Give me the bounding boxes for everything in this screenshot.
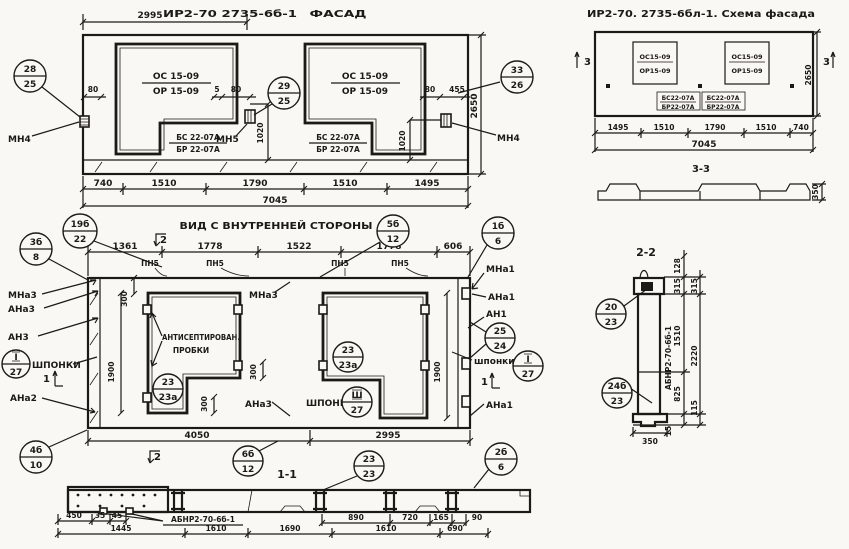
sdim-1495: 1495 [608, 123, 629, 132]
sec22-panel-code: АБНР2-70-6б-1 [664, 326, 673, 390]
svg-text:6: 6 [498, 463, 504, 473]
edge-plate-3 [462, 396, 470, 407]
label-ana1: АНа1 [488, 293, 515, 303]
svg-text:20: 20 [605, 303, 618, 313]
svg-text:5б: 5б [387, 219, 400, 230]
scheme-win-left-1: ОС15-09 [639, 53, 671, 61]
jamb-plug-2 [143, 393, 151, 402]
label-an1: АН1 [486, 310, 507, 320]
svg-text:22: 22 [74, 235, 87, 245]
dim-350-scheme: 350 [811, 184, 820, 200]
scheme-win-right-1: ОС15-09 [731, 53, 763, 61]
facade-blk-left-mark-1: БС 22-07А [176, 133, 220, 142]
dim-1610b: 1610 [376, 524, 397, 533]
svg-text:23: 23 [363, 455, 376, 465]
svg-text:12: 12 [387, 235, 400, 245]
dim-690: 690 [447, 524, 463, 533]
svg-text:23: 23 [611, 397, 624, 407]
label-mn5: МН5 [216, 135, 239, 145]
label-ana1-bottom: АНа1 [486, 401, 513, 411]
sec11-channel-1 [171, 490, 185, 512]
scheme-window-left [633, 42, 677, 84]
dim-1510b: 1510 [332, 179, 357, 189]
dim-2220: 2220 [690, 346, 699, 367]
label-mn4-left: МН4 [8, 135, 31, 145]
svg-text:24: 24 [494, 342, 507, 352]
svg-text:6б: 6б [242, 449, 255, 460]
sec11-anchor-2 [126, 508, 133, 514]
dim-890: 890 [348, 513, 364, 522]
section-2-2-title: 2-2 [636, 246, 656, 259]
facade-win-left-mark-1: ОС 15-09 [153, 72, 199, 82]
dim-7045-scheme: 7045 [691, 140, 716, 150]
dim-350-sec22: 350 [642, 437, 658, 446]
label-ana3-mid: АНа3 [245, 400, 272, 410]
label-pn5-3: ПН5 [331, 259, 349, 268]
edge-plate-2 [462, 358, 470, 369]
label-pn5-2: ПН5 [206, 259, 224, 268]
edge-plate-1 [462, 288, 470, 299]
scheme-outline [595, 32, 813, 116]
scheme-anchor-2 [698, 84, 702, 88]
svg-text:Ш: Ш [351, 391, 362, 401]
svg-text:27: 27 [522, 370, 535, 380]
section-mark-2-bottom: 2 [148, 451, 161, 463]
jamb-plug-1 [143, 305, 151, 314]
balloon-6b-12: 6б 12 [233, 441, 278, 476]
scheme-title: ИР2-70. 2735-6бл-1. Схема фасада [587, 8, 815, 20]
svg-text:12: 12 [242, 465, 255, 475]
svg-text:3б: 3б [30, 237, 43, 248]
section-mark-1-left: 1 [43, 371, 63, 386]
dim-1510-sec22: 1510 [673, 326, 682, 347]
dim-1510a: 1510 [151, 179, 176, 189]
label-mna1: МНа1 [486, 265, 515, 275]
label-shponki-left: ШПОНКИ [32, 361, 81, 371]
svg-text:27: 27 [10, 368, 23, 378]
svg-text:1: 1 [43, 374, 50, 385]
dim-1790: 1790 [242, 179, 267, 189]
jamb-plug-5 [319, 305, 327, 314]
dim-1690: 1690 [280, 524, 301, 533]
sec11-channel-3 [383, 490, 397, 512]
section-3-3-profile [598, 184, 810, 200]
dim-2995-inner: 2995 [375, 431, 400, 441]
dim-80-mid: 80 [231, 85, 241, 94]
svg-text:23а: 23а [339, 361, 358, 371]
scheme-blk-right-1: БС22-07А [707, 95, 740, 102]
svg-text:26: 26 [511, 81, 524, 91]
section-mark-2-top: 2 [154, 234, 167, 246]
facade-title: ФАСАД [310, 9, 367, 20]
balloon-23-23: 23 23 [323, 451, 384, 490]
facade-blk-right-mark-2: БР 22-07А [316, 145, 360, 154]
balloon-23-23a-left: 23 23а [153, 374, 183, 404]
facade-top-dim: 2995 [137, 11, 162, 21]
balloon-III-27-mid: Ш 27 [342, 387, 372, 417]
dim-7045-facade: 7045 [262, 196, 287, 206]
balloon-29-25: 29 25 [254, 77, 300, 115]
idim-1522: 1522 [286, 242, 311, 252]
sdim-1790: 1790 [705, 123, 726, 132]
label-antiseptic-2: ПРОБКИ [173, 346, 209, 355]
label-mna3-mid: МНа3 [249, 291, 278, 301]
balloon-I-27-right: I 27 [513, 351, 543, 381]
sdim-740: 740 [793, 123, 809, 132]
lifting-loop [640, 271, 648, 279]
dim-1900-right: 1900 [433, 362, 442, 383]
svg-text:10: 10 [30, 461, 43, 471]
dim-115: 115 [690, 400, 699, 416]
dim-4050: 4050 [184, 431, 209, 441]
balloon-2b-6: 2б 6 [474, 443, 517, 488]
section-mark-3-right: 3 [823, 52, 835, 68]
jamb-plug-4 [234, 361, 242, 370]
svg-text:2: 2 [154, 452, 161, 463]
inner-title: ВИД С ВНУТРЕННЕЙ СТОРОНЫ [180, 219, 373, 232]
facade-view: 2995 ИР2-70 2735-6б-1 ФАСАД ОС 15-09 ОР … [8, 8, 533, 209]
idim-1778a: 1778 [197, 242, 222, 252]
balloon-20-23: 20 23 [596, 289, 647, 329]
scheme-win-left-2: ОР15-09 [639, 67, 671, 75]
anchor-mn5 [245, 110, 255, 123]
jamb-plug-3 [234, 305, 242, 314]
dim-315-inner: 315 [673, 278, 682, 294]
dim-720: 720 [402, 513, 418, 522]
sec11-body [68, 490, 530, 512]
label-an3: АН3 [8, 333, 29, 343]
dim-165: 165 [433, 513, 449, 522]
scheme-blk-left-1: БС22-07А [662, 95, 695, 102]
scheme-blk-left-2: БР22-07А [662, 104, 695, 111]
dim-455: 455 [449, 85, 465, 94]
svg-text:3: 3 [584, 57, 591, 68]
scheme-anchor-1 [606, 84, 610, 88]
dim-315-outer: 315 [690, 278, 699, 294]
svg-text:23: 23 [363, 470, 376, 480]
svg-text:3: 3 [823, 57, 830, 68]
sec11-rebar-dots [77, 494, 157, 508]
facade-win-right-mark-1: ОС 15-09 [342, 72, 388, 82]
scheme-window-right [725, 42, 769, 84]
section-2-2: 2-2 АБНР2-70-6б-1 128 315 1510 825 315 2… [596, 246, 706, 446]
dim-825: 825 [673, 386, 682, 402]
svg-text:19б: 19б [71, 219, 90, 230]
svg-text:8: 8 [33, 253, 39, 263]
label-antiseptic-1: АНТИСЕПТИРОВАН. [162, 333, 240, 342]
dim-450: 450 [66, 511, 82, 520]
svg-text:I: I [14, 353, 17, 363]
balloon-28-25: 28 25 [14, 60, 80, 117]
dim-80-left: 80 [88, 85, 98, 94]
svg-text:28: 28 [24, 65, 37, 75]
idim-1361: 1361 [112, 242, 137, 252]
scheme-anchor-3 [790, 84, 794, 88]
facade-blk-left-mark-2: БР 22-07А [176, 145, 220, 154]
svg-text:23: 23 [605, 318, 618, 328]
dim-2650-scheme: 2650 [804, 65, 813, 86]
label-pn5-4: ПН5 [391, 259, 409, 268]
sec22-shoe [633, 414, 667, 426]
inner-view: ВИД С ВНУТРЕННЕЙ СТОРОНЫ 1361 1778 1522 … [2, 214, 543, 490]
label-shponki-right: шпонки [474, 357, 515, 367]
dim-1020-mid: 1020 [256, 123, 265, 144]
scheme-blk-right-2: БР22-07А [707, 104, 740, 111]
svg-text:27: 27 [351, 406, 364, 416]
balloon-23-23a-right: 23 23а [333, 342, 363, 372]
facade-win-left-mark-2: ОР 15-09 [153, 87, 199, 97]
balloon-25-24: 25 24 [470, 322, 515, 358]
balloon-24b-23: 24б 23 [602, 378, 652, 408]
svg-text:4б: 4б [30, 445, 43, 456]
dim-300-c: 300 [200, 396, 209, 412]
facade-win-right-mark-2: ОР 15-09 [342, 87, 388, 97]
sec11-channel-2 [313, 490, 327, 512]
jamb-plug-8 [421, 361, 429, 370]
svg-text:23: 23 [342, 346, 355, 356]
dim-740: 740 [94, 179, 113, 189]
svg-text:1б: 1б [492, 221, 505, 232]
svg-text:1: 1 [481, 377, 488, 388]
dim-1900-left: 1900 [107, 362, 116, 383]
label-ana2: АНа2 [10, 394, 37, 404]
section-3-3-title: 3-3 [692, 164, 710, 175]
dim-300-b: 300 [249, 364, 258, 380]
label-ana3-left: АНа3 [8, 305, 35, 315]
svg-text:I: I [526, 355, 529, 365]
svg-text:33: 33 [511, 66, 524, 76]
dim-1495: 1495 [414, 179, 439, 189]
svg-text:23а: 23а [159, 393, 178, 403]
svg-text:2б: 2б [495, 447, 508, 458]
idim-606: 606 [444, 242, 463, 252]
section-mark-3-left: 3 [575, 52, 591, 68]
balloon-4b-10: 4б 10 [20, 430, 87, 473]
jamb-plug-6 [319, 361, 327, 370]
section-1-1-title: 1-1 [277, 468, 297, 481]
facade-blk-right-mark-1: БС 22-07А [316, 133, 360, 142]
section-mark-1-right: 1 [481, 373, 500, 388]
svg-text:25: 25 [24, 80, 37, 90]
svg-text:23: 23 [162, 378, 175, 388]
balloon-33-26: 33 26 [458, 61, 533, 93]
svg-text:2: 2 [160, 235, 167, 246]
svg-text:29: 29 [278, 82, 291, 92]
balloon-I-27-left: I 27 [2, 350, 30, 378]
dim-1610a: 1610 [206, 524, 227, 533]
sdim-1510a: 1510 [654, 123, 675, 132]
dim-15: 15 [664, 426, 673, 436]
dim-45: 45 [112, 511, 122, 520]
label-mna3-left: МНа3 [8, 291, 37, 301]
svg-text:24б: 24б [608, 381, 627, 392]
dim-2650-facade: 2650 [470, 93, 480, 118]
sec11-channel-4 [445, 490, 459, 512]
dim-1020-right: 1020 [398, 131, 407, 152]
dim-5: 5 [214, 85, 219, 94]
drawing-sheet: 2995 ИР2-70 2735-6б-1 ФАСАД ОС 15-09 ОР … [0, 0, 849, 549]
svg-text:25: 25 [278, 97, 291, 107]
dim-90: 90 [472, 513, 482, 522]
facade-code: ИР2-70 2735-6б-1 [163, 8, 297, 20]
anchor-mn4-right [441, 114, 451, 127]
dim-128: 128 [673, 258, 682, 274]
dim-1445: 1445 [111, 524, 132, 533]
section-1-1: 1-1 АБНР2-70-6б-1 450 35 45 890 720 165 [55, 468, 530, 538]
jamb-plug-7 [421, 305, 429, 314]
dim-80-right: 80 [425, 85, 435, 94]
dim-35: 35 [95, 511, 105, 520]
label-mn4-right: МН4 [497, 134, 520, 144]
svg-text:25: 25 [494, 327, 507, 337]
sec11-panel-code: АБНР2-70-6б-1 [171, 515, 235, 524]
scheme-view: ИР2-70. 2735-6бл-1. Схема фасада ОС15-09… [575, 8, 835, 203]
panel-drawing: 2995 ИР2-70 2735-6б-1 ФАСАД ОС 15-09 ОР … [0, 0, 849, 549]
inner-panel-outline [88, 278, 470, 428]
sdim-1510b: 1510 [756, 123, 777, 132]
scheme-win-right-2: ОР15-09 [731, 67, 763, 75]
svg-text:6: 6 [495, 237, 501, 247]
